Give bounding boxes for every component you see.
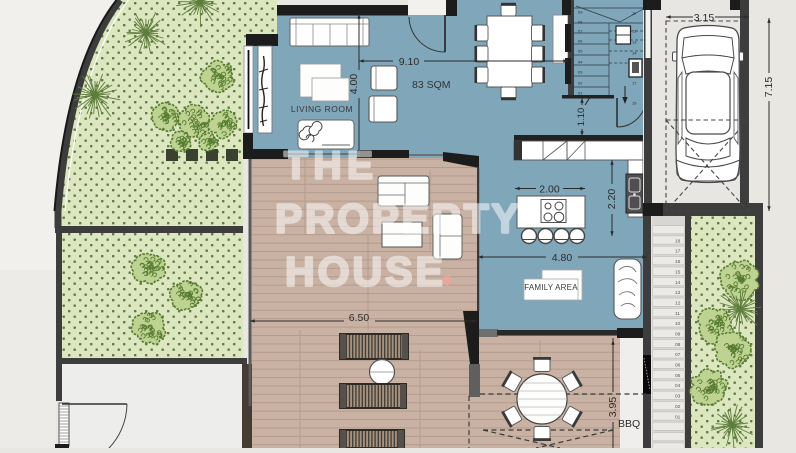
svg-text:06: 06	[675, 363, 681, 369]
svg-text:3.15: 3.15	[694, 12, 715, 24]
svg-text:02: 02	[578, 81, 583, 86]
svg-text:08: 08	[578, 20, 583, 25]
svg-text:06: 06	[578, 39, 583, 44]
svg-text:07: 07	[578, 29, 583, 34]
svg-text:17: 17	[675, 249, 681, 255]
svg-text:18: 18	[675, 238, 681, 244]
svg-text:7.15: 7.15	[763, 77, 775, 98]
svg-text:01: 01	[675, 414, 681, 420]
svg-text:4.00: 4.00	[348, 74, 360, 95]
svg-text:PROPERTY: PROPERTY	[275, 196, 521, 242]
svg-text:03: 03	[675, 394, 681, 400]
svg-text:02: 02	[675, 404, 681, 410]
svg-text:13: 13	[675, 290, 681, 296]
svg-text:03: 03	[578, 70, 583, 75]
svg-text:19: 19	[632, 101, 637, 106]
svg-text:2.00: 2.00	[539, 184, 560, 196]
svg-text:BBQ: BBQ	[618, 418, 640, 430]
svg-text:17: 17	[632, 81, 637, 86]
svg-text:05: 05	[578, 49, 583, 54]
svg-text:10: 10	[675, 321, 681, 327]
svg-text:04: 04	[675, 383, 681, 389]
svg-text:83 SQM: 83 SQM	[412, 79, 451, 91]
svg-text:HOUSE: HOUSE	[285, 249, 446, 295]
svg-text:14: 14	[632, 51, 637, 56]
svg-text:2.20: 2.20	[606, 189, 618, 210]
svg-text:12: 12	[675, 300, 681, 306]
svg-text:14: 14	[675, 280, 681, 286]
svg-text:1.10: 1.10	[576, 108, 587, 127]
svg-text:01: 01	[578, 91, 583, 96]
svg-text:LIVING ROOM: LIVING ROOM	[291, 104, 353, 114]
svg-text:08: 08	[675, 342, 681, 348]
svg-text:07: 07	[675, 352, 681, 358]
svg-text:16: 16	[675, 259, 681, 265]
svg-text:12: 12	[632, 29, 637, 34]
svg-text:09: 09	[578, 10, 583, 15]
svg-text:15: 15	[675, 269, 681, 275]
svg-text:3.95: 3.95	[607, 397, 619, 418]
svg-text:9.10: 9.10	[399, 56, 420, 68]
svg-text:FAMILY AREA: FAMILY AREA	[524, 283, 578, 292]
svg-text:4.80: 4.80	[552, 252, 573, 264]
svg-text:04: 04	[578, 60, 583, 65]
svg-text:11: 11	[675, 311, 680, 317]
svg-text:09: 09	[675, 332, 681, 338]
svg-text:05: 05	[675, 373, 681, 379]
svg-text:13: 13	[632, 40, 637, 45]
svg-text:THE: THE	[284, 145, 379, 188]
svg-text:6.50: 6.50	[349, 312, 370, 324]
